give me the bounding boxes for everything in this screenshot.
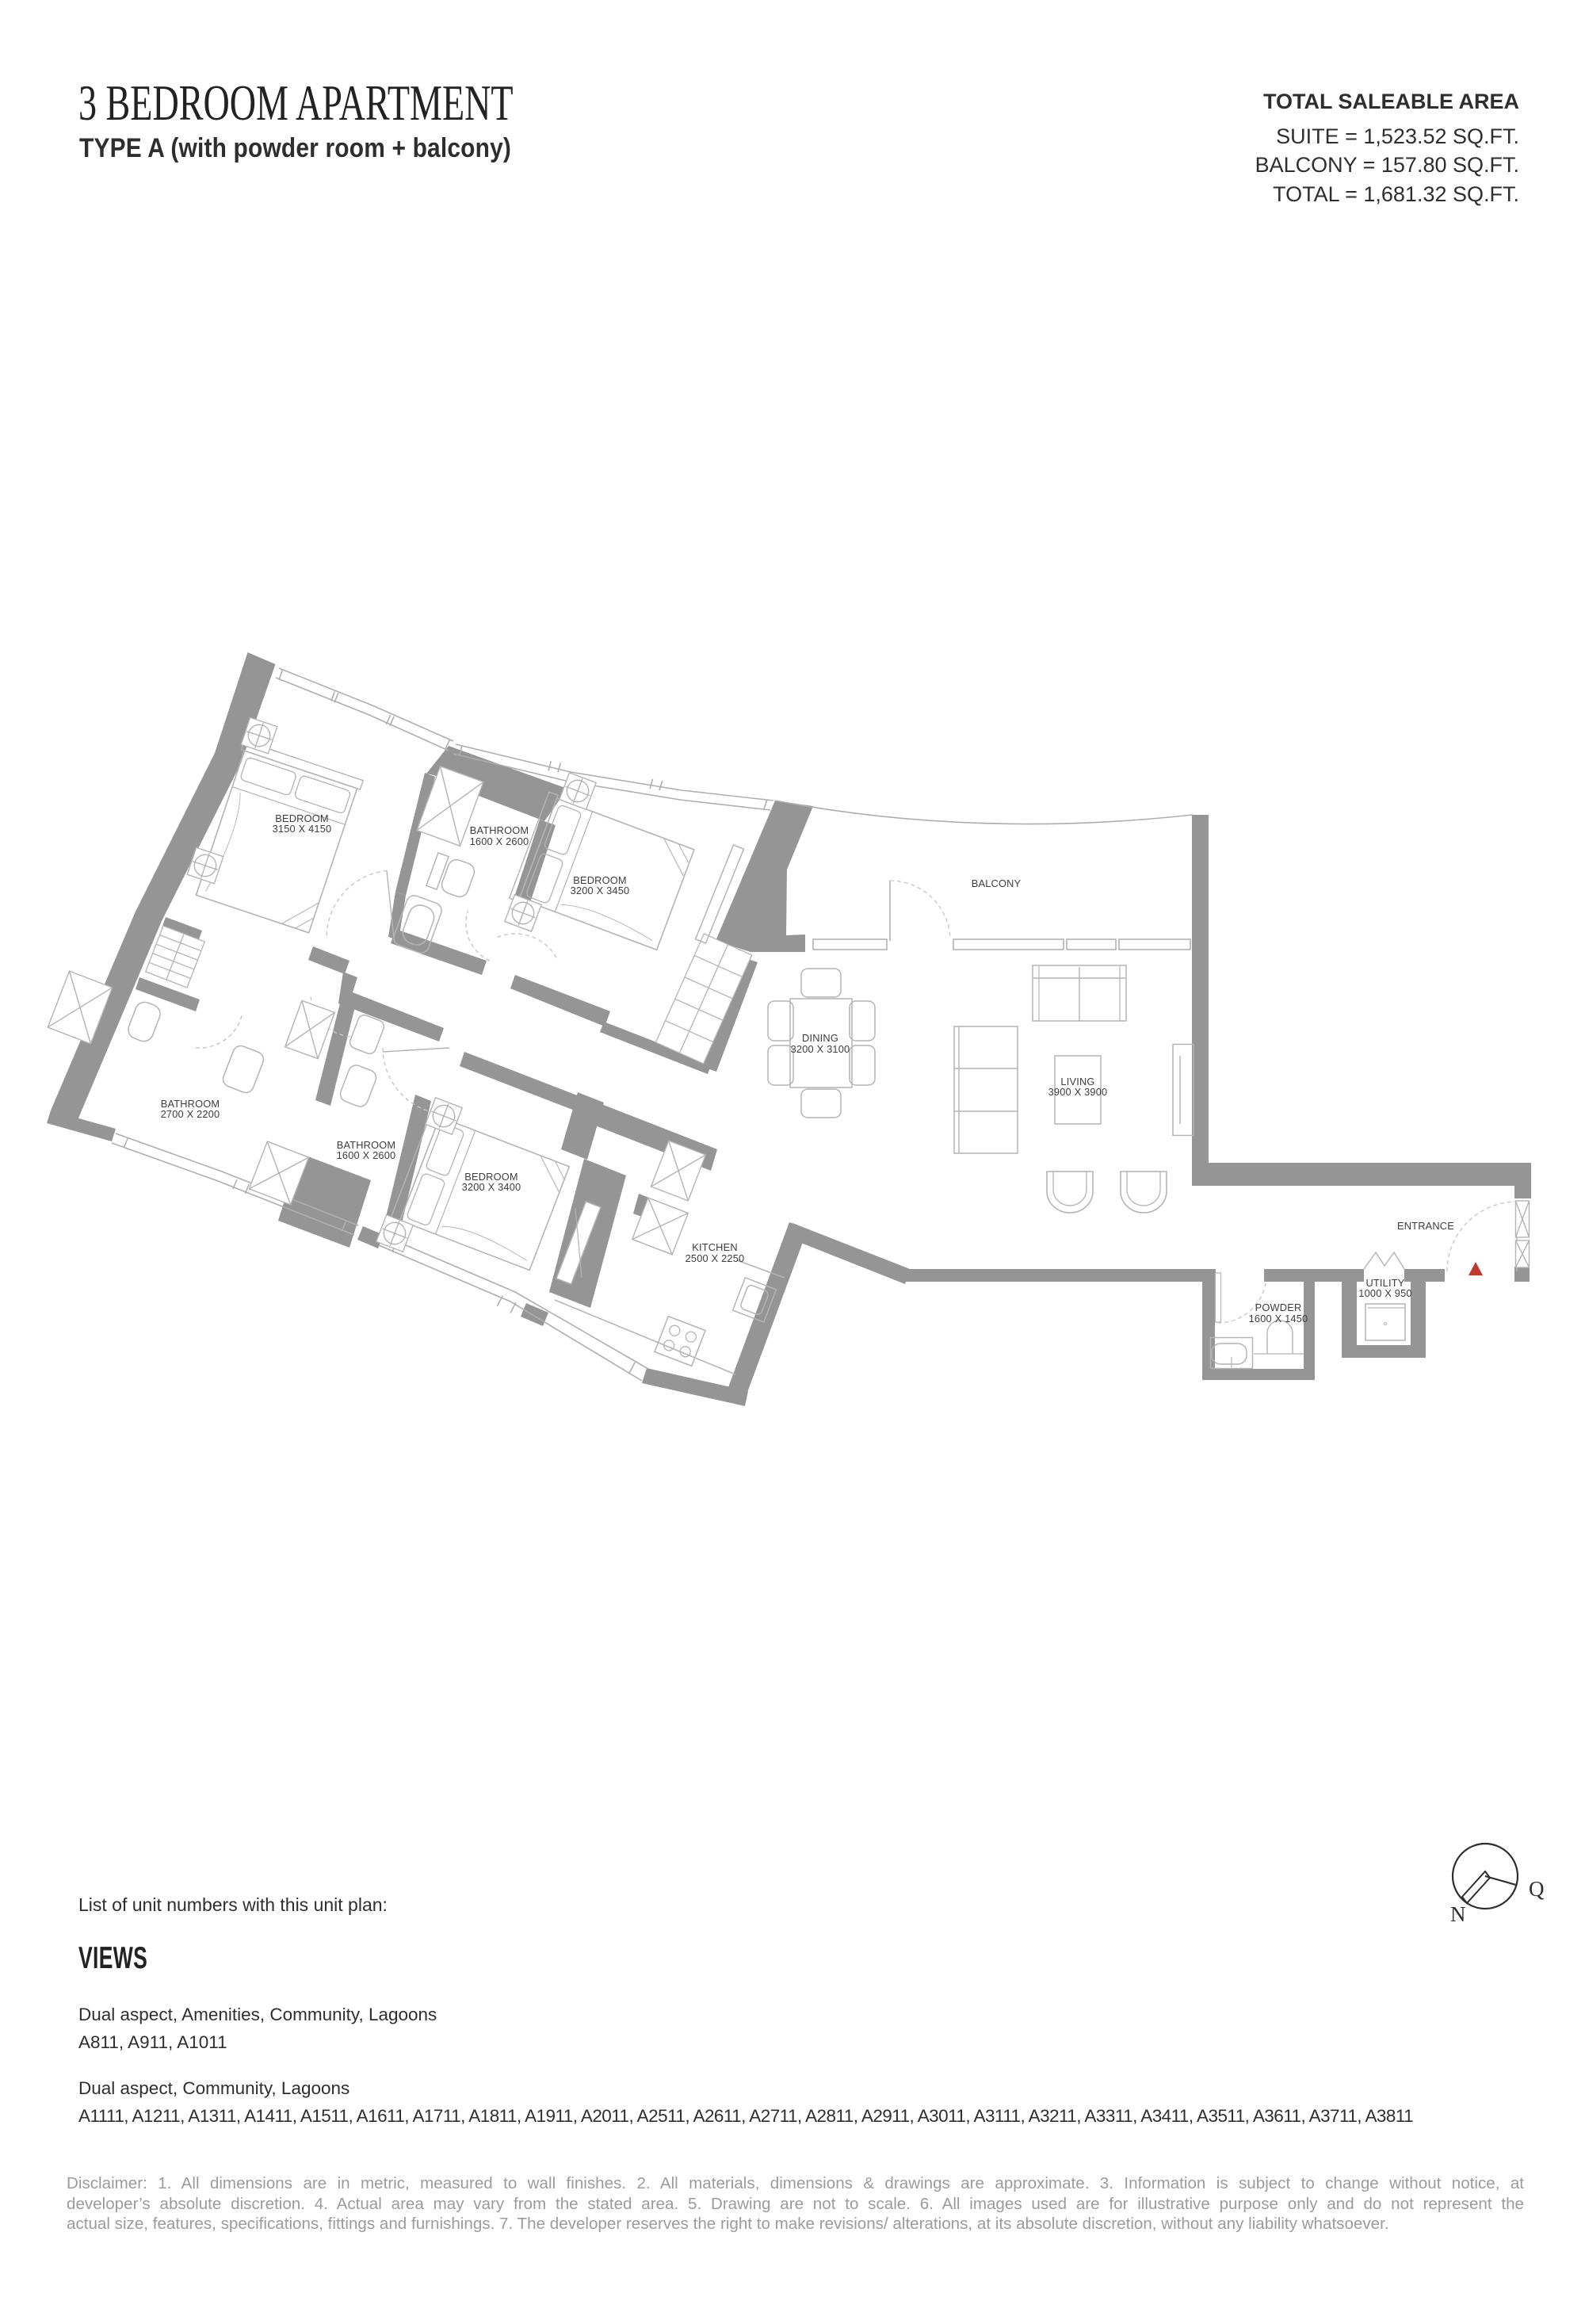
svg-text:1600 X 2600: 1600 X 2600 [337, 1149, 396, 1161]
svg-text:DINING: DINING [802, 1032, 838, 1044]
svg-text:1000 X 950: 1000 X 950 [1358, 1287, 1411, 1299]
svg-text:BALCONY: BALCONY [972, 877, 1022, 889]
svg-text:1600 X 1450: 1600 X 1450 [1249, 1313, 1308, 1324]
svg-text:Q: Q [1529, 1877, 1545, 1901]
svg-text:1600 X 2600: 1600 X 2600 [470, 835, 529, 847]
svg-text:3200 X 3400: 3200 X 3400 [462, 1181, 521, 1193]
svg-text:ENTRANCE: ENTRANCE [1397, 1220, 1454, 1232]
svg-text:N: N [1450, 1902, 1466, 1926]
svg-text:BATHROOM: BATHROOM [470, 824, 529, 836]
svg-text:3200 X 3100: 3200 X 3100 [791, 1043, 850, 1055]
svg-text:3900 X 3900: 3900 X 3900 [1048, 1086, 1108, 1098]
svg-text:3150 X 4150: 3150 X 4150 [273, 823, 332, 835]
svg-text:3200 X 3450: 3200 X 3450 [571, 885, 630, 896]
svg-text:KITCHEN: KITCHEN [692, 1241, 738, 1253]
svg-text:2700 X 2200: 2700 X 2200 [161, 1108, 220, 1120]
svg-text:2500 X 2250: 2500 X 2250 [686, 1252, 745, 1264]
svg-text:POWDER: POWDER [1255, 1302, 1302, 1313]
